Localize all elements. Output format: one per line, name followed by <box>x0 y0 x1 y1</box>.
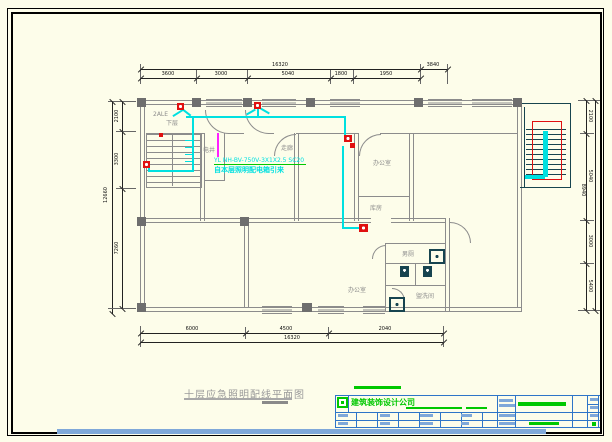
dim-line <box>140 333 444 334</box>
wall <box>409 133 410 221</box>
titleblock-line <box>335 395 336 428</box>
drawing-number-text <box>529 422 559 425</box>
wall <box>358 133 359 221</box>
titleblock-line <box>482 412 483 427</box>
titleblock-line <box>356 412 357 427</box>
window <box>472 99 512 107</box>
dim-label: 16320 <box>258 62 302 68</box>
lower-floor-label: 下层 <box>166 120 178 127</box>
wall <box>385 243 445 244</box>
window <box>206 99 242 107</box>
titleblock-line <box>335 395 600 396</box>
dim-label: 3840 <box>411 62 455 68</box>
field-label <box>380 422 390 425</box>
titleblock-line <box>587 412 588 427</box>
office-label: 办公室 <box>348 287 366 294</box>
window <box>318 306 344 314</box>
wall <box>144 104 145 308</box>
dim-label: 5400 <box>587 271 593 301</box>
revision-bar <box>354 386 401 389</box>
office-label: 办公室 <box>373 160 391 167</box>
emergency-device <box>159 133 163 137</box>
dim-line <box>112 101 113 314</box>
wire-tick <box>185 161 192 162</box>
wall <box>521 100 522 312</box>
dim-label: 6000 <box>162 326 222 332</box>
storage-label: 库房 <box>370 205 382 212</box>
titleblock-line <box>335 420 600 421</box>
emergency-panel <box>177 103 184 110</box>
field-label <box>590 414 598 417</box>
window <box>330 99 360 107</box>
field-label <box>420 422 433 425</box>
dim-label: 5040 <box>587 161 593 191</box>
dim-label: 1950 <box>366 71 406 77</box>
dim-label: 16320 <box>266 335 318 341</box>
toilet-fixture <box>400 266 409 277</box>
company-logo-core <box>341 401 344 404</box>
toilet-fixture <box>423 266 432 277</box>
column <box>137 98 146 107</box>
field-label <box>461 422 469 425</box>
company-name: 建筑装饰设计公司 <box>351 398 415 407</box>
window <box>262 306 292 314</box>
wire-tick <box>185 147 192 148</box>
titleblock-line <box>497 412 498 427</box>
titleblock-line <box>335 412 600 413</box>
titleblock-line <box>398 412 399 427</box>
wall <box>520 103 571 104</box>
wall <box>380 133 517 134</box>
wire <box>342 146 344 229</box>
exit-light <box>429 249 445 264</box>
shaft-riser-line <box>217 133 219 157</box>
column <box>306 98 315 107</box>
dim-line <box>140 69 448 70</box>
wire-tick <box>185 154 192 155</box>
signature-line <box>406 407 462 409</box>
emergency-panel <box>254 102 261 109</box>
wall <box>298 133 299 221</box>
dim-label: 3600 <box>148 71 188 77</box>
wall <box>413 133 414 221</box>
signature-line <box>466 407 487 409</box>
dim-label: 3000 <box>587 226 593 256</box>
wall <box>140 218 371 219</box>
column <box>240 217 249 226</box>
wire <box>344 117 346 136</box>
field-label <box>338 422 348 425</box>
titleblock-line <box>598 395 599 428</box>
note-underline <box>214 164 306 165</box>
wall <box>415 263 416 285</box>
wall <box>391 222 446 223</box>
titleblock-line <box>587 404 599 405</box>
wall <box>570 103 571 188</box>
wire <box>192 117 194 172</box>
column <box>513 98 522 107</box>
stair-rail <box>172 133 173 186</box>
dim-label: 3300 <box>114 144 120 174</box>
wire-corridor-run <box>186 116 346 118</box>
wall <box>296 133 358 134</box>
titleblock-line <box>515 395 516 412</box>
titleblock-line <box>440 412 441 427</box>
dim-label: 12660 <box>103 177 109 213</box>
cad-drawing-sheet: 2ALE 下层 电井 走廊 办公室 库房 办公室 男厕 盥洗间 YL NH-BV… <box>0 0 612 442</box>
title-scale-block <box>262 401 288 404</box>
field-label <box>499 404 515 407</box>
titleblock-line <box>515 412 516 427</box>
dim-line <box>140 78 421 79</box>
shaft-label: 电井 <box>203 147 215 154</box>
wire-riser <box>543 131 548 177</box>
wire-source-note: 自本层照明配电箱引来 <box>214 166 284 174</box>
bottom-strip <box>57 429 546 434</box>
wall <box>140 222 371 223</box>
wall <box>358 196 409 197</box>
column <box>243 98 252 107</box>
field-label <box>590 406 598 409</box>
wall <box>517 104 518 308</box>
field-label <box>420 414 433 417</box>
emergency-device <box>350 143 355 148</box>
field-label <box>461 414 472 417</box>
wall <box>385 285 445 286</box>
dim-label: 2100 <box>587 101 593 131</box>
dim-label: 4500 <box>256 326 316 332</box>
field-label <box>499 399 513 402</box>
field-label <box>499 414 515 417</box>
column <box>302 303 312 312</box>
dim-label: 7260 <box>114 233 120 263</box>
corridor-label: 走廊 <box>281 145 293 152</box>
wire <box>525 175 545 179</box>
exit-light <box>389 297 405 312</box>
titleblock-line <box>335 427 600 428</box>
wall <box>140 100 141 312</box>
emergency-device <box>359 224 368 232</box>
titleblock-line <box>497 395 498 412</box>
wire-spec-note: YL NH-BV-750V-3X1X2.5 SC20 <box>214 157 304 164</box>
dim-label: 3000 <box>201 71 241 77</box>
wire <box>148 170 194 172</box>
field-label <box>380 414 390 417</box>
wall <box>204 180 225 181</box>
wall <box>244 222 245 307</box>
window <box>363 306 385 314</box>
panel-label: 2ALE <box>153 111 168 118</box>
column <box>137 303 146 312</box>
dim-ext <box>116 131 136 132</box>
dim-label: 1800 <box>321 71 361 77</box>
window <box>428 99 462 107</box>
dim-ext <box>116 188 136 189</box>
project-name-text <box>518 402 566 406</box>
titleblock-line <box>572 412 573 427</box>
wire <box>257 109 259 118</box>
field-label <box>338 414 348 417</box>
sheet-flag <box>592 422 596 426</box>
wall <box>445 218 446 311</box>
wall <box>391 218 446 219</box>
dim-line <box>140 342 444 343</box>
toilet-label: 男厕 <box>402 251 414 258</box>
title-underline <box>184 398 292 400</box>
column <box>137 217 146 226</box>
dim-label: 2100 <box>114 101 120 131</box>
wall <box>520 187 571 188</box>
emergency-device <box>143 161 150 168</box>
emergency-device <box>344 135 352 142</box>
wire-tick <box>185 140 192 141</box>
wall <box>228 133 244 134</box>
dim-label: 8940 <box>580 175 586 205</box>
field-label <box>590 398 598 401</box>
field-label <box>499 422 515 425</box>
dim-label: 2040 <box>355 326 415 332</box>
dim-label: 5040 <box>268 71 308 77</box>
titleblock-line <box>348 395 349 412</box>
titleblock-line <box>377 412 378 427</box>
column <box>414 98 423 107</box>
column <box>192 98 201 107</box>
window <box>262 99 296 107</box>
wall <box>248 222 249 307</box>
titleblock-line <box>572 395 573 412</box>
washroom-label: 盥洗间 <box>416 293 434 300</box>
dim-line <box>595 100 596 311</box>
